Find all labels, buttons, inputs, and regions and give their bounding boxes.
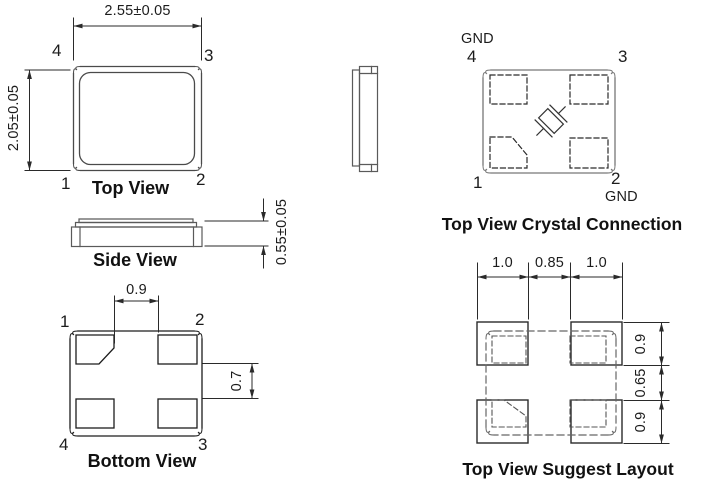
side-view-outline xyxy=(72,219,203,247)
bottom-view-pads xyxy=(76,335,197,428)
side-view-dimension-lines xyxy=(205,199,268,268)
pad-outline-top-right xyxy=(570,336,606,363)
top-view-title: Top View xyxy=(68,179,193,199)
bottom-view-pin-1-label: 1 xyxy=(60,313,69,332)
crystal-connection-gnd-top-label: GND xyxy=(461,32,494,48)
suggest-layout-title: Top View Suggest Layout xyxy=(446,460,690,479)
pad-3 xyxy=(570,75,608,104)
pad-2 xyxy=(158,335,197,364)
suggest-layout-pad-height-bottom-dimension: 0.9 xyxy=(634,407,650,437)
drawing-canvas xyxy=(0,0,719,494)
corner-notch xyxy=(74,67,81,74)
bottom-view-gap-dimension: 0.9 xyxy=(114,283,159,299)
pad-2 xyxy=(570,138,608,168)
top-view-pin-2-label: 2 xyxy=(196,171,205,190)
land-pad-bottom-left xyxy=(477,400,528,443)
corner-notch xyxy=(608,331,616,339)
crystal-connection-pin-3-label: 3 xyxy=(618,48,627,67)
suggest-layout-pad-height-top-dimension: 0.9 xyxy=(634,329,650,359)
corner-notch xyxy=(486,427,494,435)
side-view-base xyxy=(72,227,203,247)
corner-notch xyxy=(486,331,494,339)
land-pad-top-right xyxy=(571,322,622,365)
side-view-title: Side View xyxy=(70,251,200,271)
pad-4 xyxy=(76,399,114,428)
suggest-layout-pad-space-dimension: 0.85 xyxy=(528,256,571,272)
pad-3 xyxy=(158,399,197,428)
bottom-view-pin-2-label: 2 xyxy=(195,311,204,330)
suggest-layout-land-pads xyxy=(477,322,622,443)
corner-notch xyxy=(70,428,78,436)
top-view-package-outline xyxy=(74,67,202,171)
crystal-package-drawing: 2.55±0.05 2.05±0.05 4 3 1 2 Top View 0.5… xyxy=(0,0,719,494)
suggest-layout-package-outline xyxy=(486,331,616,435)
suggest-layout-pad-width-right-dimension: 1.0 xyxy=(570,256,623,272)
crystal-connection-outline xyxy=(483,70,615,173)
pad-outline-bottom-right xyxy=(570,400,606,427)
end-view-lid xyxy=(353,70,360,166)
top-view-pin-4-label: 4 xyxy=(52,42,61,61)
crystal-connection-pin-1-label: 1 xyxy=(473,174,482,193)
suggest-layout-pad-width-left-dimension: 1.0 xyxy=(477,256,528,272)
top-view-pin-3-label: 3 xyxy=(204,47,213,66)
corner-notch xyxy=(608,427,616,435)
land-pad-bottom-right xyxy=(571,400,622,443)
end-view-outline xyxy=(353,67,378,172)
suggest-layout-package-pads xyxy=(492,336,606,427)
bottom-view-package-outline xyxy=(70,331,202,436)
side-view-height-dimension: 0.55±0.05 xyxy=(275,194,291,270)
land-pad-top-left xyxy=(477,322,528,365)
crystal-connection-pads xyxy=(490,75,608,168)
crystal-symbol xyxy=(528,98,573,143)
crystal-connection-title: Top View Crystal Connection xyxy=(438,215,686,234)
top-view-lid xyxy=(80,73,195,165)
crystal-connection-pin-2-label: 2 xyxy=(611,170,620,189)
top-view-width-dimension: 2.55±0.05 xyxy=(73,4,202,20)
pad-1-chamfered xyxy=(76,335,114,364)
bottom-view-title: Bottom View xyxy=(62,452,222,472)
pad-outline-top-left xyxy=(492,336,526,363)
suggest-layout-pad-space-vertical-dimension: 0.65 xyxy=(634,364,650,402)
corner-notch xyxy=(74,164,81,171)
pad-outline-bottom-left-chamfered xyxy=(492,400,526,427)
bottom-view-vertical-gap-dimension: 0.7 xyxy=(230,366,246,396)
top-view-height-dimension: 2.05±0.05 xyxy=(7,80,23,156)
crystal-connection-pin-4-label: 4 xyxy=(467,48,476,67)
corner-notch xyxy=(195,67,202,74)
crystal-connection-gnd-bottom-label: GND xyxy=(605,190,638,206)
pad-4 xyxy=(490,75,527,104)
pad-1-chamfered xyxy=(490,137,527,168)
